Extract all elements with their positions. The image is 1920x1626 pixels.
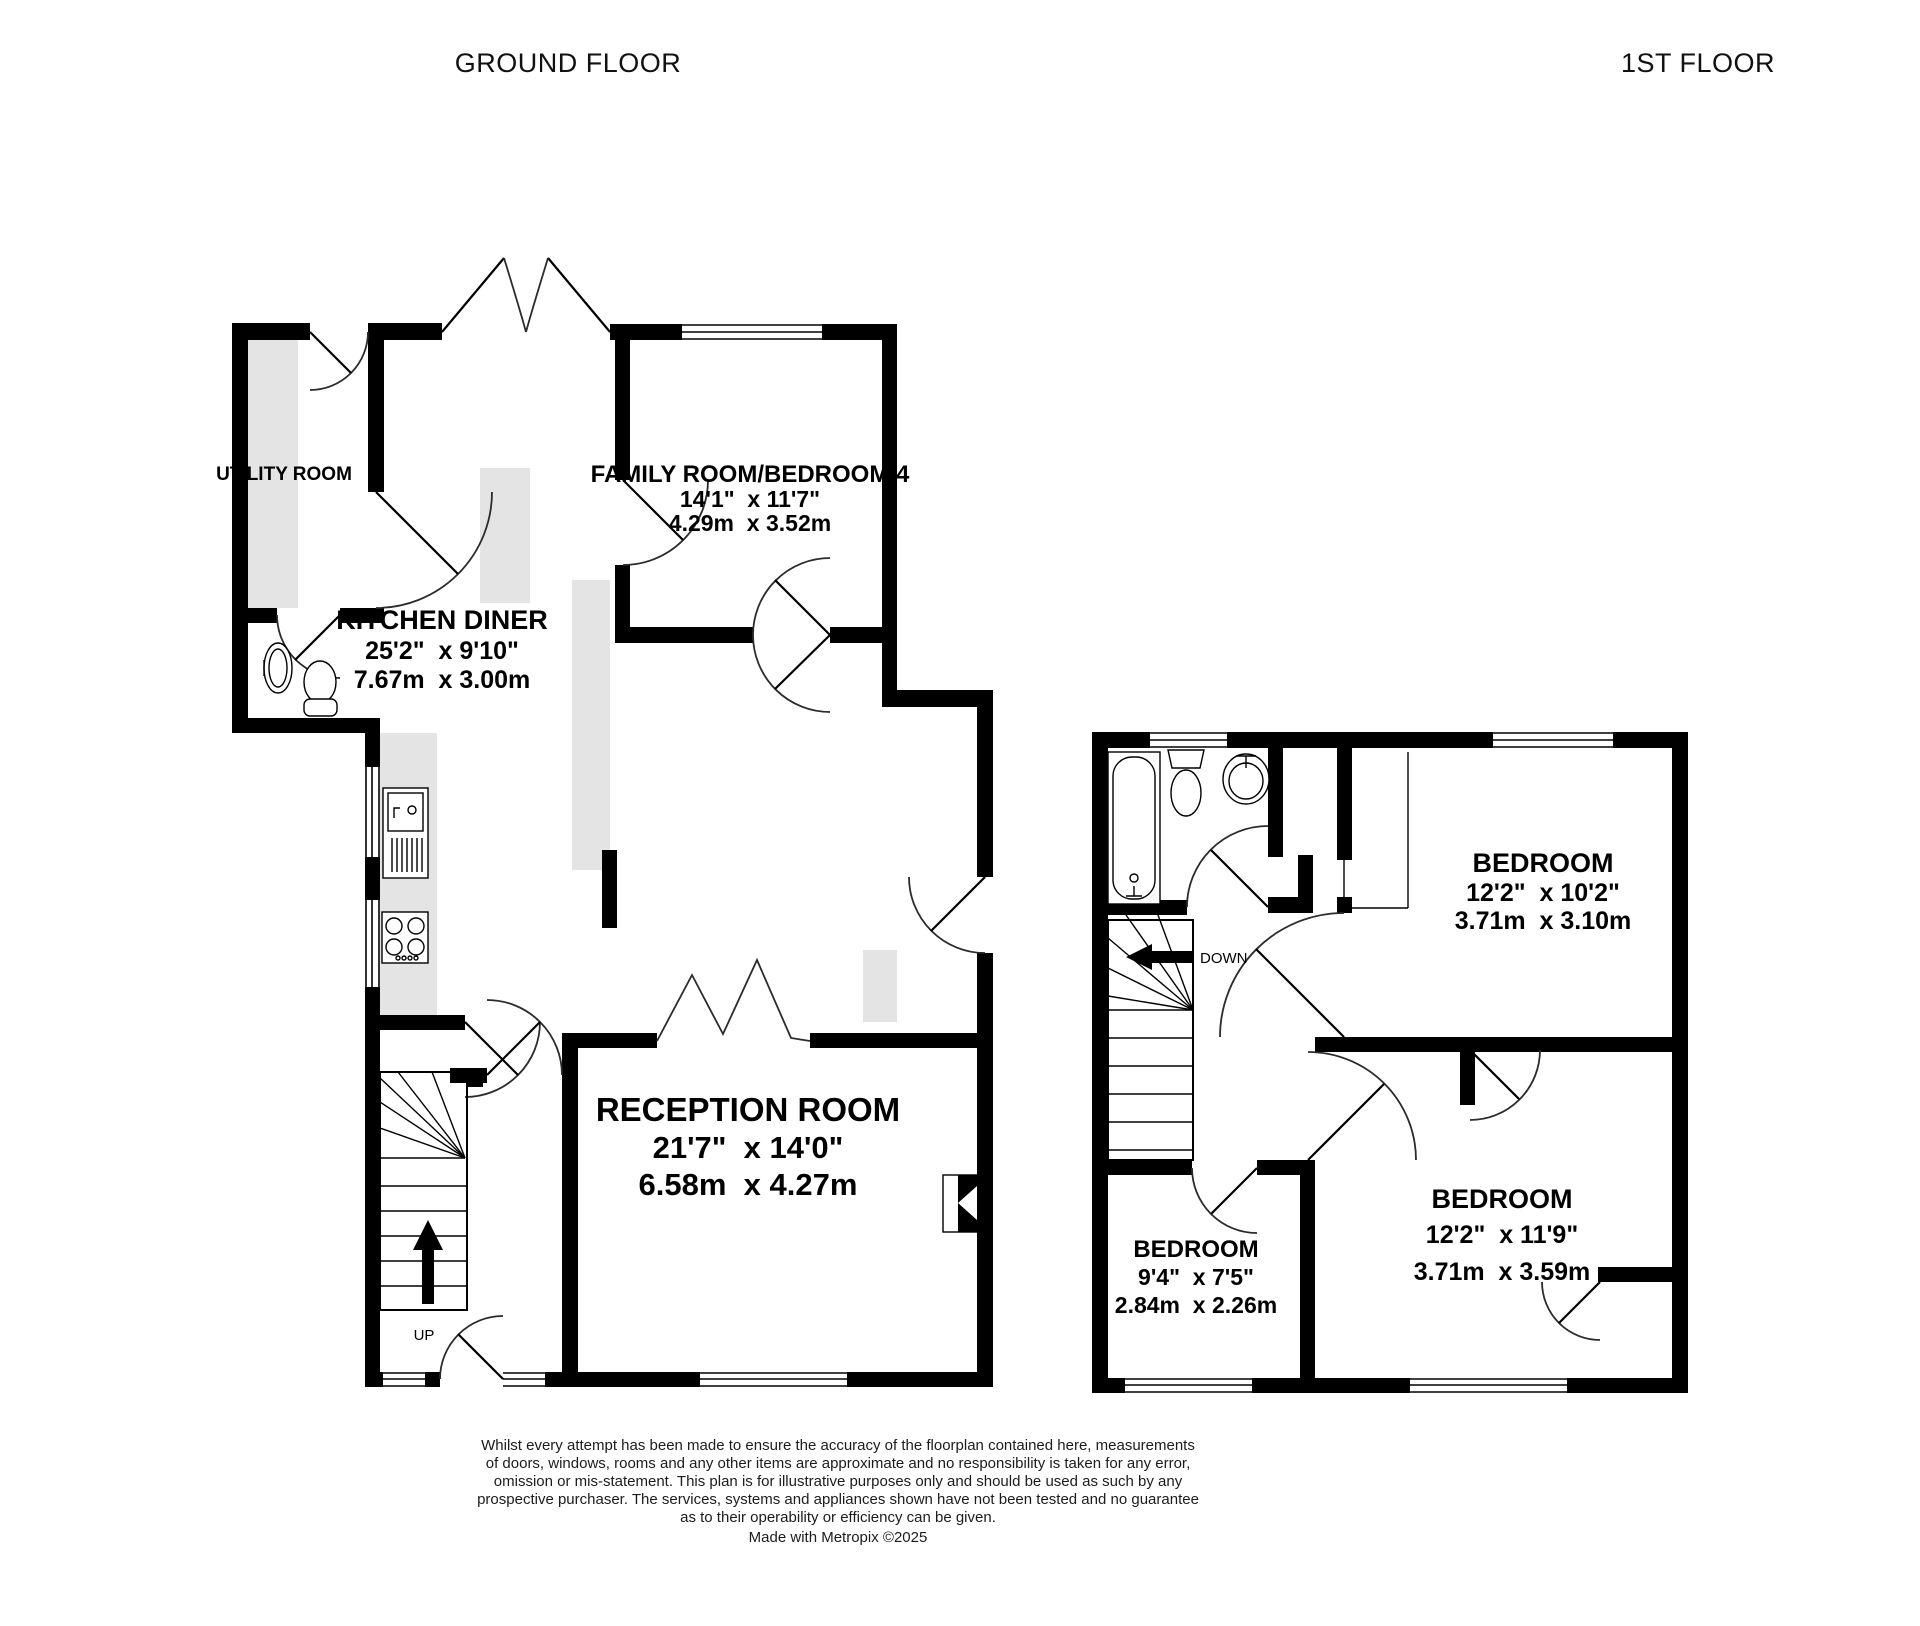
wall-segment bbox=[1268, 732, 1283, 857]
first-floor-plan: DOWN BEDROOM 12'2" x 10'2" bbox=[1092, 732, 1688, 1393]
room-imperial: 25'2" x 9'10" bbox=[365, 637, 519, 665]
hall-grey-patch bbox=[863, 950, 897, 1022]
kitchen-fixtures bbox=[382, 788, 428, 963]
wall-segment bbox=[365, 1372, 383, 1387]
stairs-down-label: DOWN bbox=[1200, 950, 1248, 967]
wall-segment bbox=[615, 340, 630, 480]
wall-segment bbox=[1300, 1160, 1315, 1378]
stair-winders bbox=[380, 1072, 465, 1158]
room-label-bedroom1: BEDROOM 12'2" x 10'2" 3.71m x 3.10m bbox=[1455, 848, 1632, 935]
first-floor-title: 1ST FLOOR bbox=[1621, 48, 1775, 78]
wall-segment bbox=[847, 1372, 993, 1387]
wall-segment bbox=[1337, 748, 1352, 860]
wall-segment bbox=[882, 690, 993, 707]
window bbox=[365, 900, 380, 987]
door bbox=[376, 492, 492, 608]
disclaimer-credit: Made with Metropix ©2025 bbox=[749, 1529, 928, 1546]
wall-segment bbox=[1337, 897, 1352, 913]
worktops bbox=[248, 340, 897, 1022]
floorplan-page: GROUND FLOOR 1ST FLOOR bbox=[0, 0, 1920, 1626]
bathroom-door bbox=[1187, 826, 1268, 907]
room-imperial: 12'2" x 10'2" bbox=[1466, 879, 1620, 907]
down-arrow-icon bbox=[1126, 944, 1194, 970]
room-name: KITCHEN DINER bbox=[336, 605, 548, 635]
window bbox=[503, 1372, 545, 1387]
wall-segment bbox=[1227, 732, 1493, 748]
room-imperial: 12'2" x 11'9" bbox=[1426, 1221, 1578, 1249]
wall-segment bbox=[1298, 855, 1313, 913]
up-arrow-icon bbox=[413, 1220, 443, 1304]
ground-floor-title: GROUND FLOOR bbox=[455, 48, 682, 78]
room-metric: 3.71m x 3.59m bbox=[1414, 1258, 1591, 1286]
toilet-icon bbox=[304, 661, 337, 716]
wall-segment bbox=[232, 323, 248, 733]
disclaimer-line: omission or mis-statement. This plan is … bbox=[494, 1473, 1183, 1490]
room-label-bedroom2: BEDROOM 9'4" x 7'5" 2.84m x 2.26m bbox=[1115, 1236, 1277, 1318]
wall-segment bbox=[365, 1015, 465, 1030]
wall-segment bbox=[425, 1372, 440, 1387]
wall-segment bbox=[977, 953, 993, 1387]
wall-segment bbox=[232, 608, 277, 623]
bedroom-door bbox=[1220, 913, 1344, 1037]
room-label-bedroom3: BEDROOM 12'2" x 11'9" 3.71m x 3.59m bbox=[1414, 1184, 1591, 1286]
sink-icon bbox=[1223, 754, 1269, 804]
sink-icon bbox=[264, 643, 292, 693]
window bbox=[1410, 1378, 1567, 1393]
room-metric: 7.67m x 3.00m bbox=[354, 666, 531, 694]
wall-segment bbox=[615, 627, 753, 643]
wall-segment bbox=[610, 324, 682, 340]
wall-segment bbox=[1092, 1378, 1125, 1393]
room-label-family: FAMILY ROOM/BEDROOM 4 14'1" x 11'7" 4.29… bbox=[591, 461, 910, 536]
wall-segment bbox=[232, 718, 380, 733]
disclaimer-line: as to their operability or efficiency ca… bbox=[680, 1509, 996, 1526]
disclaimer-line: Whilst every attempt has been made to en… bbox=[481, 1437, 1195, 1454]
wall-segment bbox=[1672, 732, 1688, 1393]
wall-segment bbox=[1257, 1160, 1300, 1175]
wall-segment bbox=[615, 565, 630, 627]
wall-segment bbox=[1315, 1037, 1672, 1052]
wall-segment bbox=[602, 850, 617, 928]
wall-segment bbox=[977, 707, 993, 877]
wall-segment bbox=[830, 627, 897, 643]
wall-segment bbox=[1598, 1267, 1688, 1282]
stairs-up-label: UP bbox=[414, 1327, 435, 1344]
window bbox=[383, 1372, 425, 1387]
entrance-door bbox=[440, 1316, 503, 1379]
room-name: RECEPTION ROOM bbox=[596, 1091, 900, 1128]
room-name: BEDROOM bbox=[1473, 848, 1614, 878]
wall-segment bbox=[1613, 732, 1688, 748]
kitchen-sink-icon bbox=[383, 788, 428, 878]
wall-segment bbox=[810, 1033, 993, 1048]
window bbox=[1493, 732, 1613, 748]
wall-segment bbox=[467, 1072, 483, 1087]
window bbox=[682, 324, 822, 340]
room-name: BEDROOM bbox=[1432, 1184, 1573, 1214]
fireplace-icon bbox=[943, 1175, 977, 1232]
room-metric: 3.71m x 3.10m bbox=[1455, 907, 1632, 935]
ground-floor-plan: UP bbox=[216, 258, 993, 1387]
wall-segment bbox=[1567, 1378, 1688, 1393]
door bbox=[487, 1000, 562, 1075]
wall-segment bbox=[1252, 1378, 1410, 1393]
window bbox=[1150, 732, 1227, 748]
front-door bbox=[909, 877, 985, 953]
room-imperial: 9'4" x 7'5" bbox=[1138, 1264, 1254, 1290]
room-label-kitchen: KITCHEN DINER 25'2" x 9'10" 7.67m x 3.00… bbox=[336, 605, 548, 694]
wall-segment bbox=[368, 323, 384, 492]
wall-segment bbox=[232, 323, 310, 340]
wall-segment bbox=[545, 1372, 700, 1387]
cupboard-door bbox=[1542, 1282, 1600, 1340]
window bbox=[700, 1372, 847, 1387]
stairs-down: DOWN bbox=[1108, 915, 1248, 1160]
hob-icon bbox=[382, 912, 428, 963]
wall-segment bbox=[1460, 1037, 1475, 1105]
room-name: FAMILY ROOM/BEDROOM 4 bbox=[591, 461, 910, 488]
stairs-up: UP bbox=[380, 1072, 467, 1344]
room-name: UTILITY ROOM bbox=[216, 464, 352, 485]
stair-treads bbox=[1108, 1038, 1193, 1150]
disclaimer: Whilst every attempt has been made to en… bbox=[477, 1437, 1199, 1546]
wall-segment bbox=[1092, 732, 1150, 748]
room-metric: 6.58m x 4.27m bbox=[639, 1167, 858, 1202]
room-label-utility: UTILITY ROOM bbox=[216, 464, 352, 485]
room-name: BEDROOM bbox=[1133, 1236, 1258, 1263]
room-metric: 4.29m x 3.52m bbox=[669, 510, 831, 536]
wall-segment bbox=[1092, 1160, 1192, 1175]
open-plan-divider-squiggle bbox=[657, 960, 810, 1041]
wall-segment bbox=[1092, 732, 1108, 1393]
floorplan-canvas: GROUND FLOOR 1ST FLOOR bbox=[0, 0, 1920, 1626]
room-imperial: 14'1" x 11'7" bbox=[680, 486, 820, 512]
closet-door bbox=[1470, 1050, 1540, 1120]
wall-segment bbox=[562, 1033, 578, 1387]
kitchen-mid-counter bbox=[480, 468, 530, 603]
disclaimer-line: of doors, windows, rooms and any other i… bbox=[486, 1455, 1191, 1472]
room-label-reception: RECEPTION ROOM 21'7" x 14'0" 6.58m x 4.2… bbox=[596, 1091, 900, 1202]
room-imperial: 21'7" x 14'0" bbox=[653, 1130, 844, 1165]
toilet-icon bbox=[1168, 750, 1204, 816]
bath-icon bbox=[1108, 752, 1160, 904]
kitchen-right-counter bbox=[572, 580, 610, 870]
double-swing-door bbox=[753, 558, 830, 712]
window bbox=[365, 767, 380, 857]
bedroom-door bbox=[1308, 1052, 1416, 1160]
disclaimer-line: prospective purchaser. The services, sys… bbox=[477, 1491, 1199, 1508]
french-doors bbox=[442, 258, 610, 332]
door bbox=[310, 332, 368, 390]
bedroom-door bbox=[1192, 1168, 1257, 1233]
room-metric: 2.84m x 2.26m bbox=[1115, 1292, 1277, 1318]
window bbox=[1125, 1378, 1252, 1393]
bathroom-fixtures bbox=[1108, 750, 1269, 904]
